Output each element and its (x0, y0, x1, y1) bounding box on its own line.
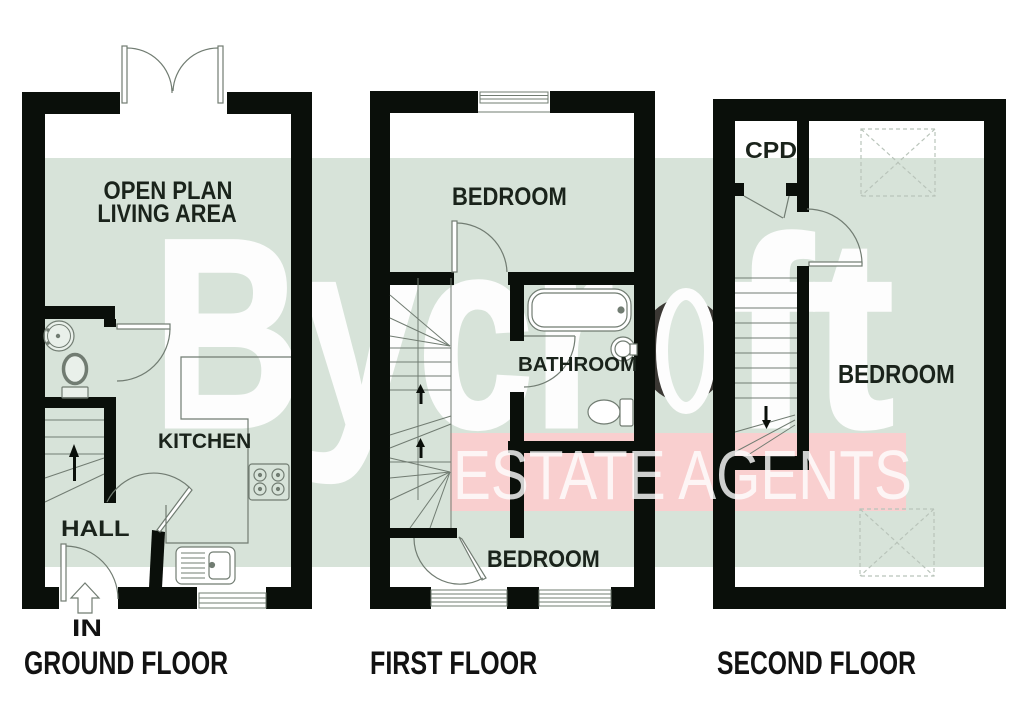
svg-text:SECOND FLOOR: SECOND FLOOR (717, 646, 916, 682)
svg-text:BEDROOM: BEDROOM (487, 545, 600, 572)
svg-text:ESTATE AGENTS: ESTATE AGENTS (453, 435, 912, 514)
svg-text:BEDROOM: BEDROOM (452, 183, 567, 211)
svg-text:HALL: HALL (61, 517, 130, 542)
svg-text:KITCHEN: KITCHEN (158, 430, 251, 453)
svg-text:LIVING AREA: LIVING AREA (97, 200, 236, 228)
svg-text:BATHROOM: BATHROOM (518, 353, 637, 376)
svg-text:FIRST FLOOR: FIRST FLOOR (370, 646, 537, 682)
svg-text:BEDROOM: BEDROOM (838, 360, 955, 389)
svg-text:CPD: CPD (745, 138, 797, 164)
svg-text:IN: IN (72, 614, 102, 641)
svg-text:GROUND FLOOR: GROUND FLOOR (24, 646, 228, 682)
